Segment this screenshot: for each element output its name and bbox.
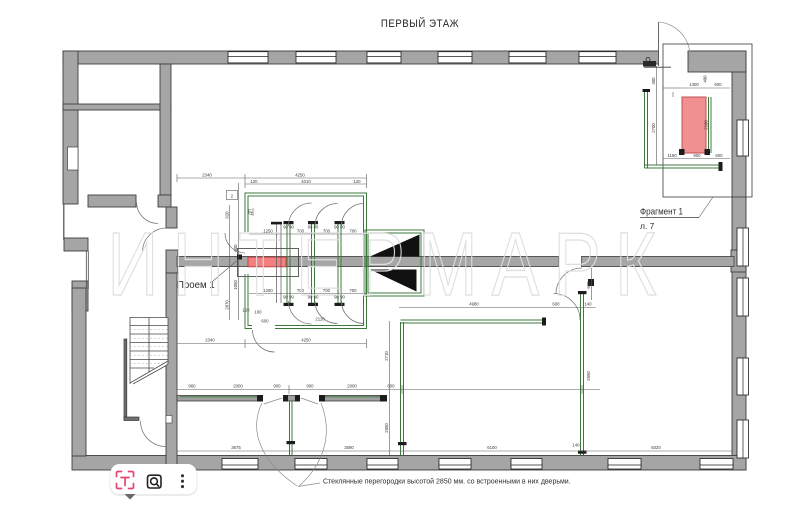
- svg-text:3590: 3590: [344, 445, 354, 450]
- svg-text:ИНТЕРМАРК: ИНТЕРМАРК: [107, 215, 670, 315]
- svg-text:6100: 6100: [487, 445, 497, 450]
- svg-text:ДП: ДП: [248, 209, 253, 215]
- svg-text:5020: 5020: [651, 445, 661, 450]
- svg-text:2710: 2710: [384, 351, 389, 361]
- svg-text:2700: 2700: [651, 123, 656, 133]
- svg-text:1300: 1300: [689, 82, 699, 87]
- svg-text:2100: 2100: [704, 120, 709, 130]
- svg-text:400: 400: [703, 75, 708, 83]
- svg-text:960: 960: [188, 384, 196, 389]
- svg-text:2000: 2000: [233, 384, 243, 389]
- svg-text:600: 600: [261, 319, 269, 324]
- svg-text:600: 600: [387, 384, 395, 389]
- svg-text:900: 900: [693, 153, 701, 158]
- svg-text:140: 140: [572, 443, 580, 448]
- svg-text:2000: 2000: [347, 384, 357, 389]
- svg-text:3675: 3675: [231, 445, 241, 450]
- svg-text:4010: 4010: [301, 179, 311, 184]
- svg-text:120: 120: [250, 179, 258, 184]
- svg-text:2650: 2650: [586, 371, 591, 381]
- svg-text:1150: 1150: [667, 153, 677, 158]
- svg-text:120: 120: [353, 179, 361, 184]
- svg-text:600: 600: [714, 82, 722, 87]
- svg-text:900: 900: [273, 384, 281, 389]
- svg-text:600: 600: [715, 153, 723, 158]
- svg-text:2650: 2650: [384, 423, 389, 433]
- svg-text:400: 400: [651, 77, 656, 85]
- svg-text:2110: 2110: [315, 317, 325, 322]
- svg-text:Стеклянные перегородки высотой: Стеклянные перегородки высотой 2850 мм. …: [323, 478, 571, 486]
- svg-text:2340: 2340: [205, 338, 215, 343]
- svg-text:4250: 4250: [295, 173, 305, 178]
- svg-text:4250: 4250: [301, 338, 311, 343]
- svg-text:2340: 2340: [202, 173, 212, 178]
- svg-text:ПЕРВЫЙ ЭТАЖ: ПЕРВЫЙ ЭТАЖ: [381, 16, 459, 30]
- svg-text:900: 900: [306, 384, 314, 389]
